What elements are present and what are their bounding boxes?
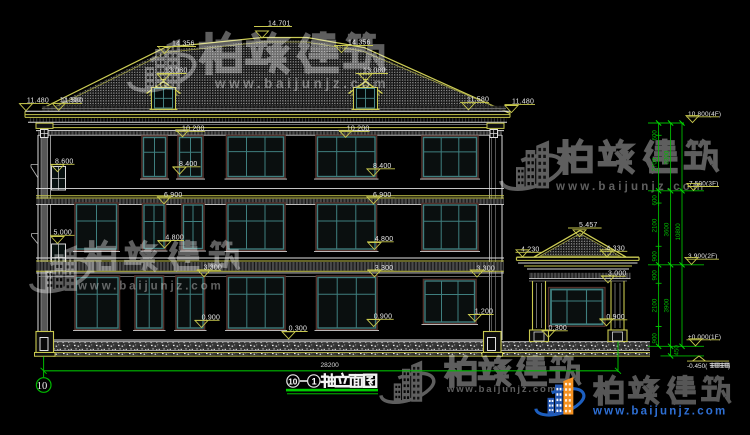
svg-text:www.baijunjz.com: www.baijunjz.com [446, 384, 558, 395]
svg-text:www.baijunjz.com: www.baijunjz.com [592, 406, 727, 418]
svg-text:10800: 10800 [675, 223, 682, 241]
svg-text:900: 900 [652, 270, 659, 281]
svg-text:28200: 28200 [321, 362, 340, 369]
svg-text:2700: 2700 [652, 157, 659, 171]
svg-text:10: 10 [288, 377, 298, 386]
svg-text:3900: 3900 [664, 298, 671, 312]
svg-text:1: 1 [312, 377, 317, 387]
svg-text:2100: 2100 [652, 218, 659, 232]
svg-text:900: 900 [652, 251, 659, 262]
svg-text:www.baijunjz.com: www.baijunjz.com [77, 281, 224, 293]
svg-text:900: 900 [652, 333, 659, 344]
svg-text:11.380: 11.380 [60, 97, 82, 104]
svg-text:3300: 3300 [664, 150, 671, 164]
svg-text:10: 10 [37, 381, 48, 392]
svg-text:3600: 3600 [664, 222, 671, 236]
svg-text:600: 600 [652, 195, 659, 206]
svg-text:-0.450(: -0.450( [687, 363, 708, 370]
svg-text:2100: 2100 [652, 298, 659, 312]
svg-text:450: 450 [674, 345, 681, 356]
svg-text:600: 600 [652, 130, 659, 141]
